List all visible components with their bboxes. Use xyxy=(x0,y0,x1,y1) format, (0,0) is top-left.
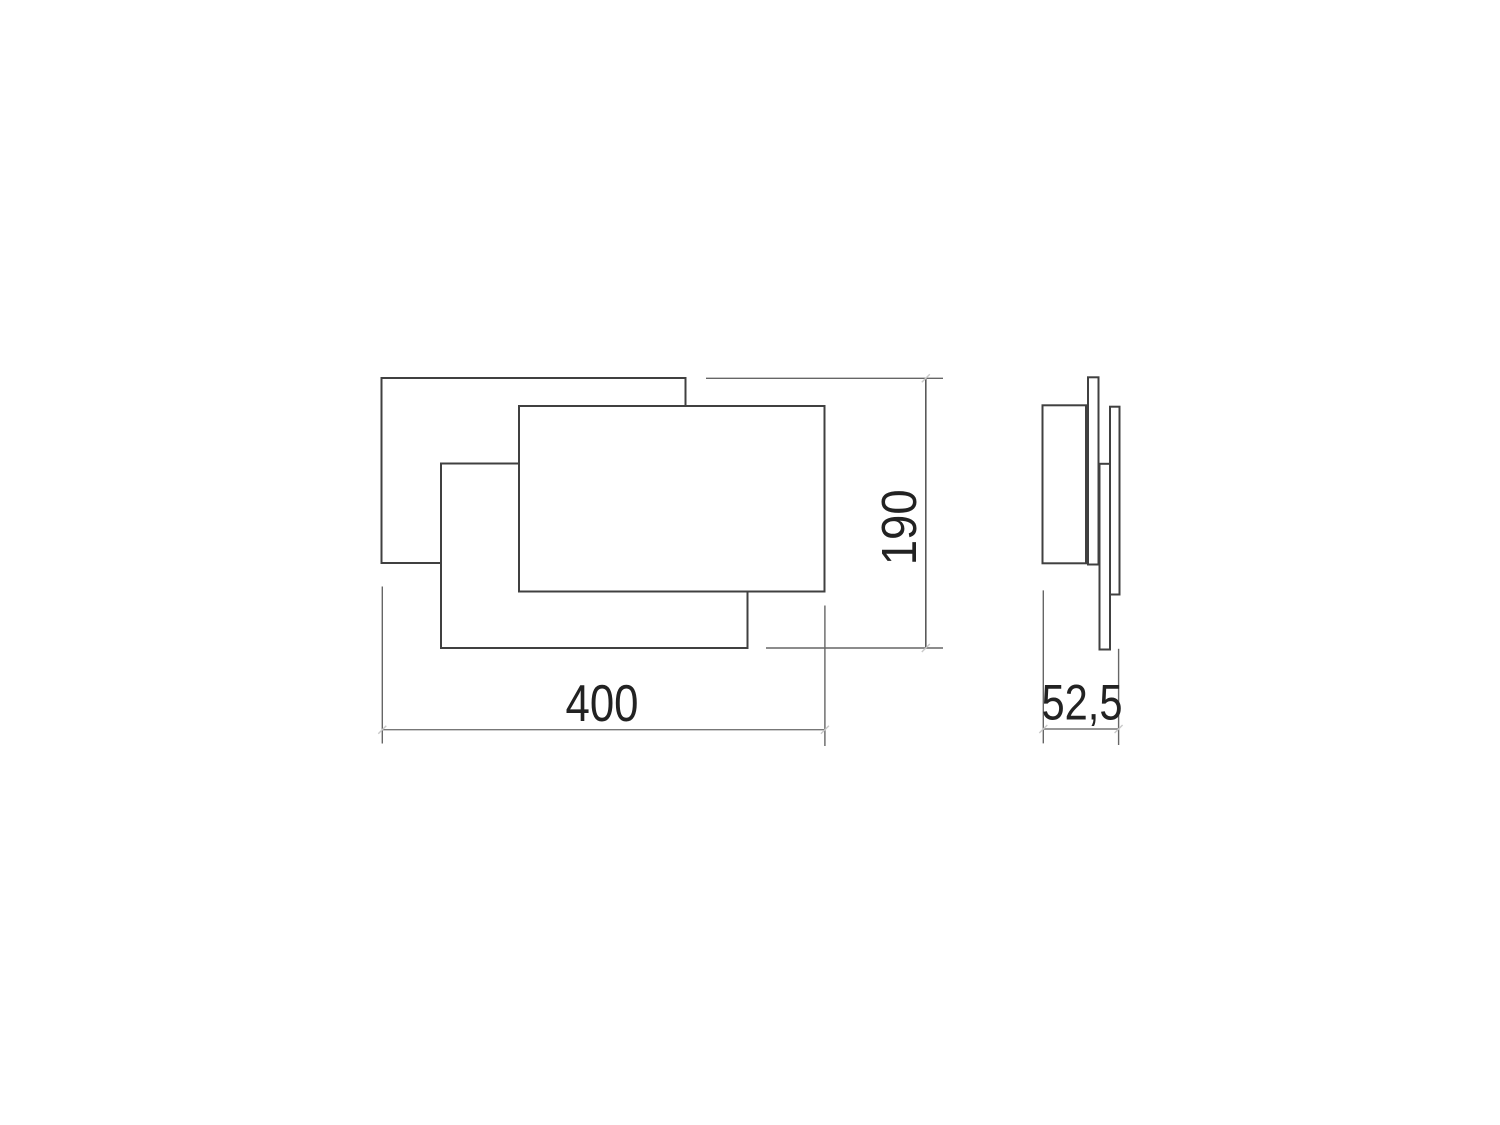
svg-text:52,5: 52,5 xyxy=(1042,674,1123,731)
svg-text:400: 400 xyxy=(566,675,639,733)
svg-text:190: 190 xyxy=(873,489,927,565)
